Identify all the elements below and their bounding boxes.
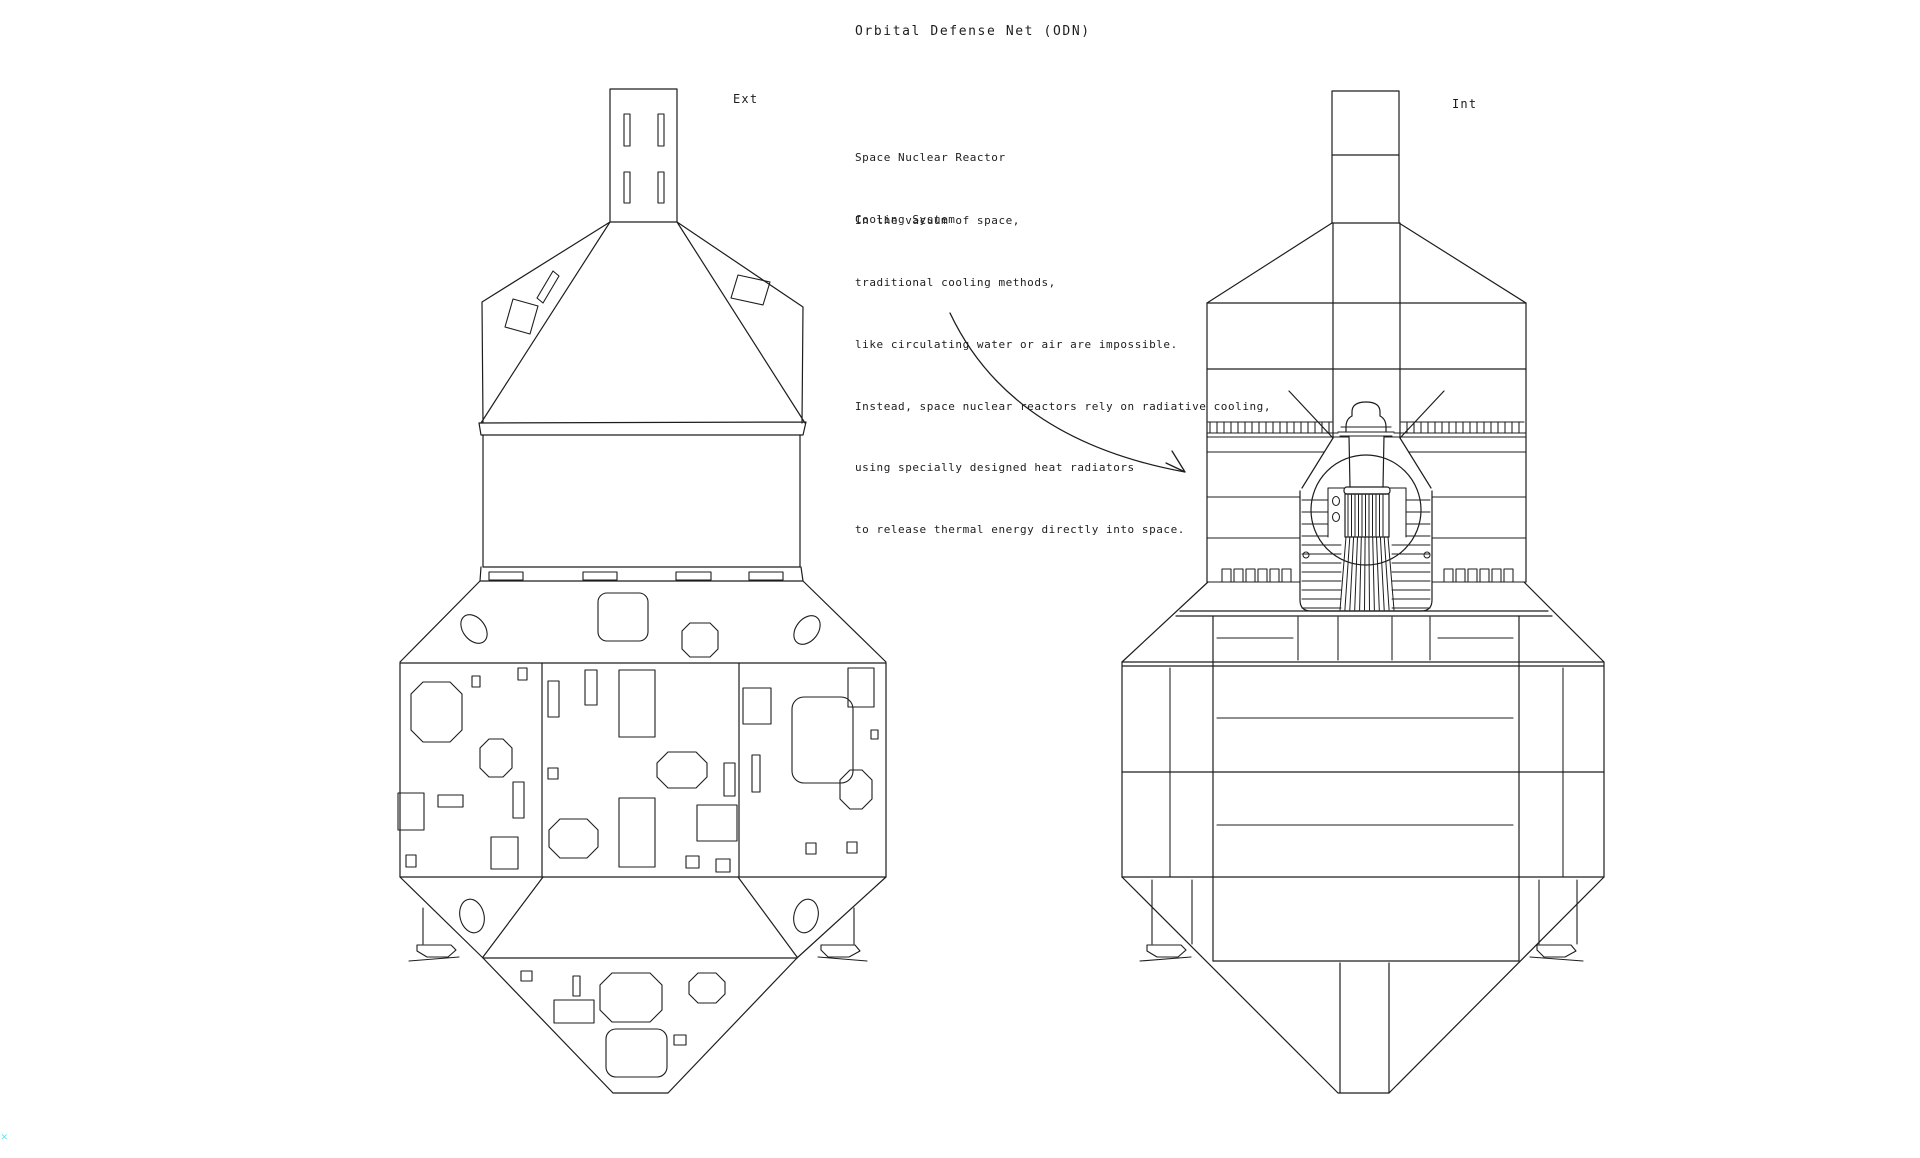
ext-neck bbox=[610, 89, 677, 222]
ext-view-drawing bbox=[398, 89, 886, 1093]
int-tail-cone bbox=[1122, 877, 1604, 1093]
int-exhaust-shaft bbox=[1340, 963, 1389, 1093]
ext-hull-panels bbox=[398, 668, 878, 872]
ext-vent-strip bbox=[489, 572, 783, 580]
ext-mid-hull bbox=[400, 581, 886, 877]
ext-shoulder bbox=[481, 222, 805, 423]
annotation-body-line-2: traditional cooling methods, bbox=[855, 273, 1271, 294]
annotation-heading-line-1: Space Nuclear Reactor bbox=[855, 148, 1006, 169]
annotation-body-line-5: using specially designed heat radiators bbox=[855, 458, 1271, 479]
diagram-title: Orbital Defense Net (ODN) bbox=[855, 24, 1091, 39]
int-lower-hull bbox=[1122, 662, 1604, 877]
ext-lower-hull bbox=[400, 877, 886, 1093]
int-radiator-comb-lower bbox=[1207, 569, 1526, 582]
annotation-body-line-6: to release thermal energy directly into … bbox=[855, 520, 1271, 541]
ext-tail-panels bbox=[521, 971, 725, 1077]
ext-view-label: Ext bbox=[733, 92, 758, 106]
int-reactor-core bbox=[1328, 487, 1406, 537]
int-view-label: Int bbox=[1452, 97, 1477, 111]
int-landing-feet bbox=[1140, 880, 1583, 961]
ext-shoulder-hatch-right bbox=[731, 275, 770, 305]
annotation-body-line-1: In the vacuum of space, bbox=[855, 211, 1271, 232]
ext-shoulder-hatch-left bbox=[505, 271, 559, 334]
ext-service-module bbox=[479, 422, 806, 581]
annotation-body: In the vacuum of space, traditional cool… bbox=[855, 170, 1271, 561]
diagram-canvas: Orbital Defense Net (ODN) Ext Int Space … bbox=[0, 0, 1920, 1158]
int-neck bbox=[1332, 91, 1399, 223]
annotation-body-line-4: Instead, space nuclear reactors rely on … bbox=[855, 397, 1271, 418]
annotation-body-line-3: like circulating water or air are imposs… bbox=[855, 335, 1271, 356]
int-reactor-funnel bbox=[1302, 438, 1431, 488]
corner-mark: ✕ bbox=[1, 1130, 8, 1143]
